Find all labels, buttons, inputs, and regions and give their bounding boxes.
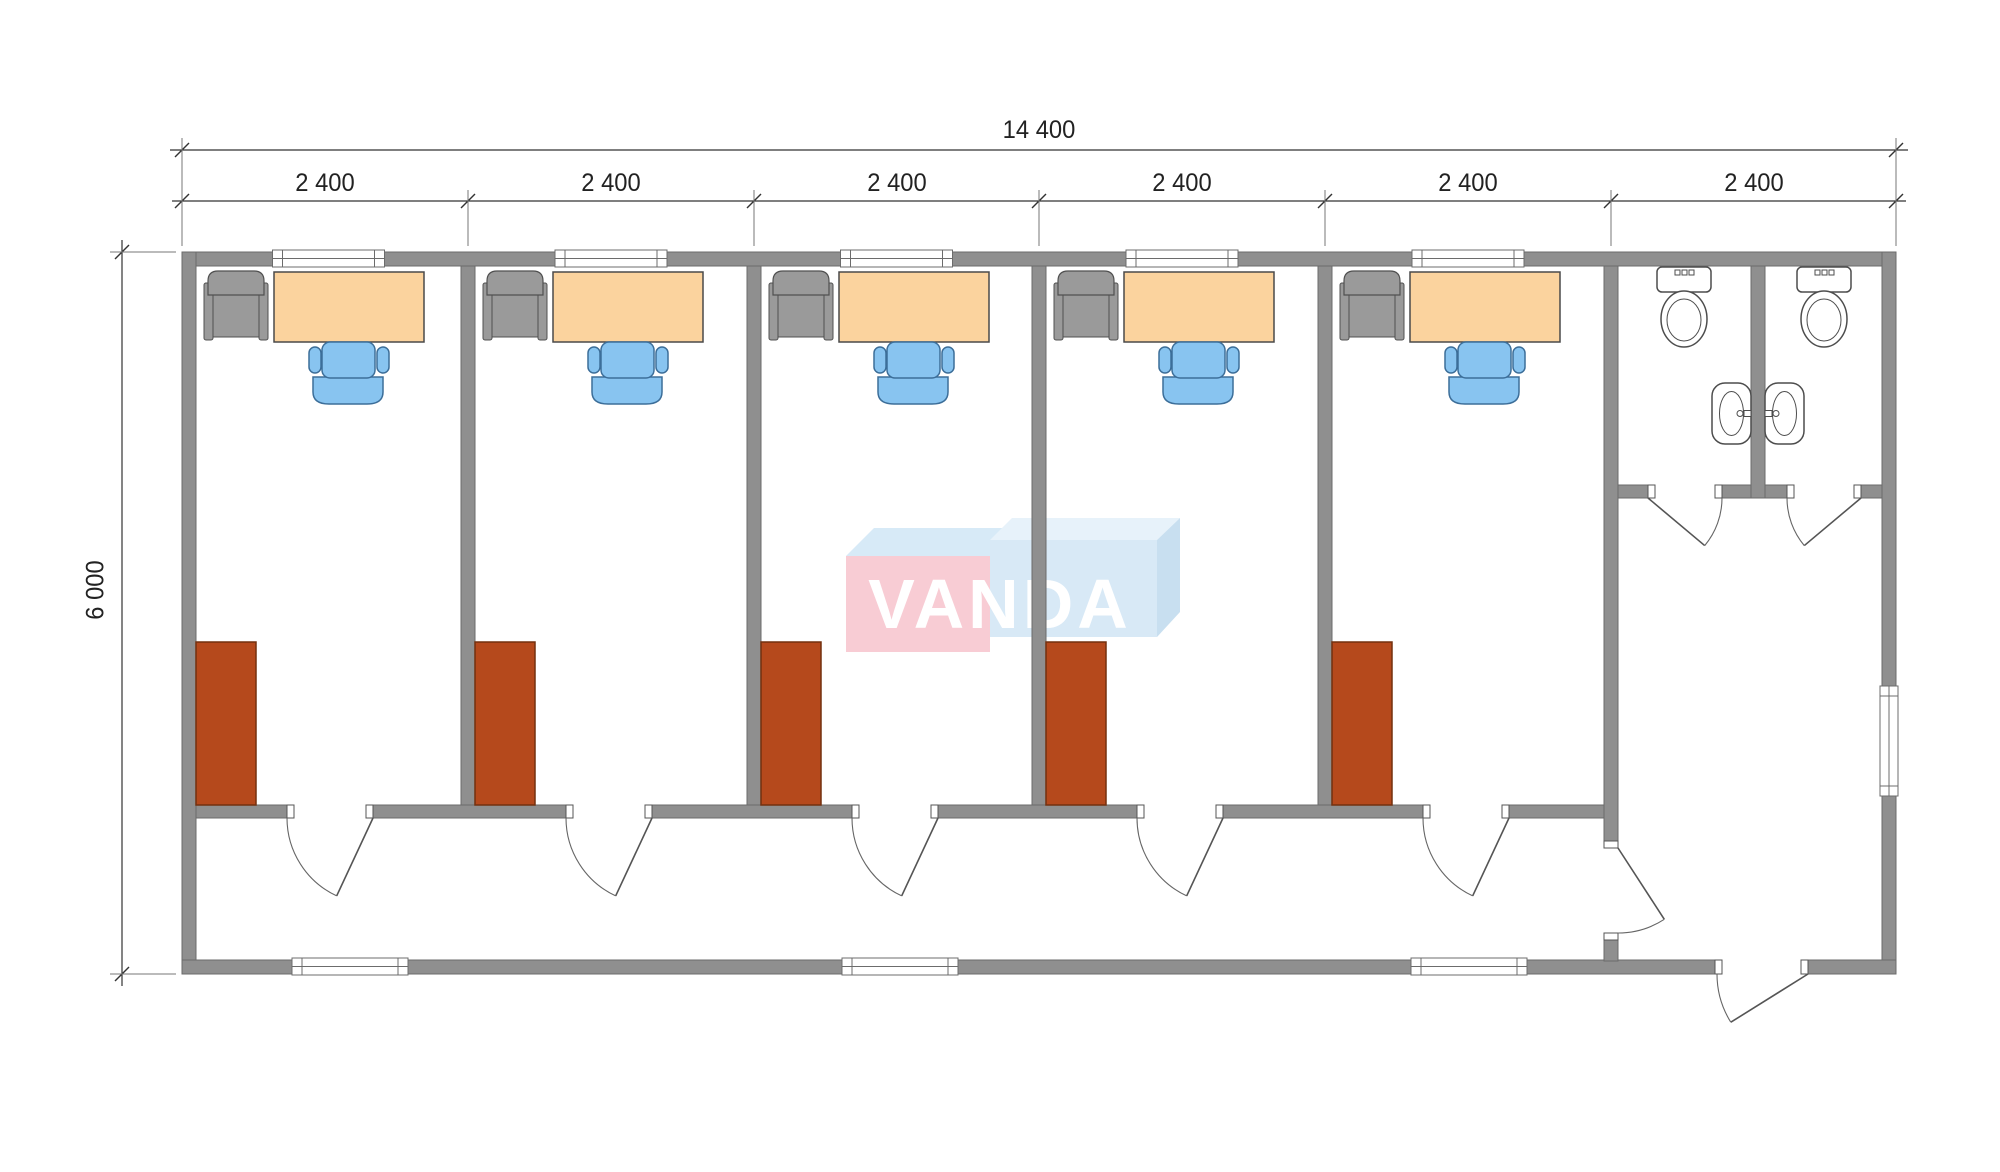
office-3-wardrobe	[761, 642, 821, 805]
office-2-door-jamb-right	[645, 805, 652, 818]
office-1-door-swing-arc	[287, 818, 337, 896]
toilet-door-1-leaf	[1648, 498, 1705, 546]
office-2-office-chair-back	[592, 377, 662, 404]
office-5-door-jamb-right	[1502, 805, 1509, 818]
toilet-2-button-2	[1822, 270, 1827, 275]
office-1-office-chair-armrest-right	[377, 347, 389, 373]
toilet-1-bowl-rim	[1667, 299, 1701, 341]
office-4-office-chair-seat	[1172, 342, 1225, 378]
toilet-1-button-2	[1682, 270, 1687, 275]
corridor-wall-seg-2	[373, 805, 566, 818]
office-2-office-chair-armrest-right	[656, 347, 668, 373]
office-1-door-jamb-left	[287, 805, 294, 818]
hall-door-leaf	[1618, 848, 1664, 919]
office-4-door-jamb-right	[1216, 805, 1223, 818]
toilet-door-2-leaf	[1804, 498, 1861, 546]
toilet-1-button-3	[1689, 270, 1694, 275]
office-1-office-chair-back	[313, 377, 383, 404]
office-3-door-jamb-left	[852, 805, 859, 818]
stall-wall-seg-1	[1618, 485, 1648, 498]
vanda-logo-blue-box-top	[990, 518, 1180, 540]
office-3-armchair-back	[773, 271, 829, 295]
office-5-office-chair-seat	[1458, 342, 1511, 378]
office-1-door-jamb-right	[366, 805, 373, 818]
door-jamb-5	[1604, 841, 1618, 848]
dimension-segment-label-2: 2 400	[581, 169, 640, 198]
dimension-total-label: 14 400	[1003, 116, 1076, 145]
bottom-wall-east	[1808, 960, 1896, 974]
dimension-segment-label-3: 2 400	[867, 169, 926, 198]
office-1-office-chair-seat	[322, 342, 375, 378]
office-4-wardrobe	[1046, 642, 1106, 805]
partition-wall-4	[1318, 266, 1332, 805]
corridor-wall-seg-3	[652, 805, 852, 818]
door-jamb-2	[1715, 485, 1722, 498]
corridor-wall-seg-5	[1223, 805, 1423, 818]
office-5-armchair-back	[1344, 271, 1400, 295]
office-4-door-jamb-left	[1137, 805, 1144, 818]
sink-basin-2-tap-head	[1773, 411, 1779, 417]
office-2-door-leaf	[616, 818, 652, 896]
office-2-office-chair-seat	[601, 342, 654, 378]
office-5-office-chair-back	[1449, 377, 1519, 404]
office-2-door-swing-arc	[566, 818, 616, 896]
office-3-office-chair-seat	[887, 342, 940, 378]
right-wall	[1882, 252, 1896, 974]
office-4-office-chair-back	[1163, 377, 1233, 404]
sink-basin-2-tap	[1765, 411, 1772, 417]
door-jamb-8	[1801, 960, 1808, 974]
toilet-2-bowl-rim	[1807, 299, 1841, 341]
dimension-segment-label-5: 2 400	[1438, 169, 1497, 198]
floor-plan-canvas: VANDA 14 400 2 400 2 400 2 400 2 400 2 4…	[0, 0, 2000, 1172]
office-4-office-chair-armrest-right	[1227, 347, 1239, 373]
hall-door-swing-arc	[1618, 919, 1664, 933]
toilet-2-button-1	[1815, 270, 1820, 275]
entrance-door-swing-arc	[1717, 974, 1731, 1022]
corridor-wall-seg-1	[196, 805, 287, 818]
left-wall	[182, 252, 196, 974]
toilet-section-wall-upper	[1604, 266, 1618, 841]
sink-basin-1-tap-head	[1737, 411, 1743, 417]
sink-basin-1-tap	[1744, 411, 1751, 417]
office-5-door-swing-arc	[1423, 818, 1473, 896]
office-1-armchair-back	[208, 271, 264, 295]
office-5-office-chair-armrest-right	[1513, 347, 1525, 373]
entrance-door-leaf	[1731, 974, 1808, 1022]
office-5-wardrobe	[1332, 642, 1392, 805]
vanda-watermark-text: VANDA	[868, 565, 1132, 643]
office-3-door-swing-arc	[852, 818, 902, 896]
office-3-desk	[839, 272, 989, 342]
door-jamb-4	[1854, 485, 1861, 498]
toilet-2-button-3	[1829, 270, 1834, 275]
office-4-office-chair-armrest-left	[1159, 347, 1171, 373]
corridor-wall-seg-6	[1509, 805, 1604, 818]
corridor-wall-seg-4	[938, 805, 1137, 818]
office-1-desk	[274, 272, 424, 342]
door-jamb-3	[1787, 485, 1794, 498]
office-2-office-chair-armrest-left	[588, 347, 600, 373]
office-1-door-leaf	[337, 818, 373, 896]
stall-wall-seg-3	[1861, 485, 1882, 498]
partition-wall-1	[461, 266, 475, 805]
office-4-door-leaf	[1187, 818, 1223, 896]
office-2-armchair-back	[487, 271, 543, 295]
office-3-door-jamb-right	[931, 805, 938, 818]
office-3-office-chair-back	[878, 377, 948, 404]
office-1-office-chair-armrest-left	[309, 347, 321, 373]
toilet-section-wall-lower	[1604, 940, 1618, 961]
office-1-wardrobe	[196, 642, 256, 805]
toilet-divider-wall	[1751, 266, 1765, 498]
toilet-door-1-swing-arc	[1705, 498, 1722, 546]
partition-wall-2	[747, 266, 761, 805]
top-wall	[182, 252, 1896, 266]
office-5-door-jamb-left	[1423, 805, 1430, 818]
office-5-door-leaf	[1473, 818, 1509, 896]
toilet-door-2-swing-arc	[1787, 498, 1804, 546]
door-jamb-6	[1604, 933, 1618, 940]
office-3-door-leaf	[902, 818, 938, 896]
office-3-office-chair-armrest-right	[942, 347, 954, 373]
office-3-office-chair-armrest-left	[874, 347, 886, 373]
dimension-height-label: 6 000	[82, 560, 111, 619]
office-2-wardrobe	[475, 642, 535, 805]
partition-wall-3	[1032, 266, 1046, 805]
dimension-segment-label-6: 2 400	[1724, 169, 1783, 198]
office-5-desk	[1410, 272, 1560, 342]
door-jamb-7	[1715, 960, 1722, 974]
dimension-segment-label-4: 2 400	[1152, 169, 1211, 198]
office-4-desk	[1124, 272, 1274, 342]
dimension-segment-label-1: 2 400	[295, 169, 354, 198]
office-4-door-swing-arc	[1137, 818, 1187, 896]
office-2-door-jamb-left	[566, 805, 573, 818]
door-jamb-1	[1648, 485, 1655, 498]
office-2-desk	[553, 272, 703, 342]
office-4-armchair-back	[1058, 271, 1114, 295]
toilet-1-button-1	[1675, 270, 1680, 275]
office-5-office-chair-armrest-left	[1445, 347, 1457, 373]
